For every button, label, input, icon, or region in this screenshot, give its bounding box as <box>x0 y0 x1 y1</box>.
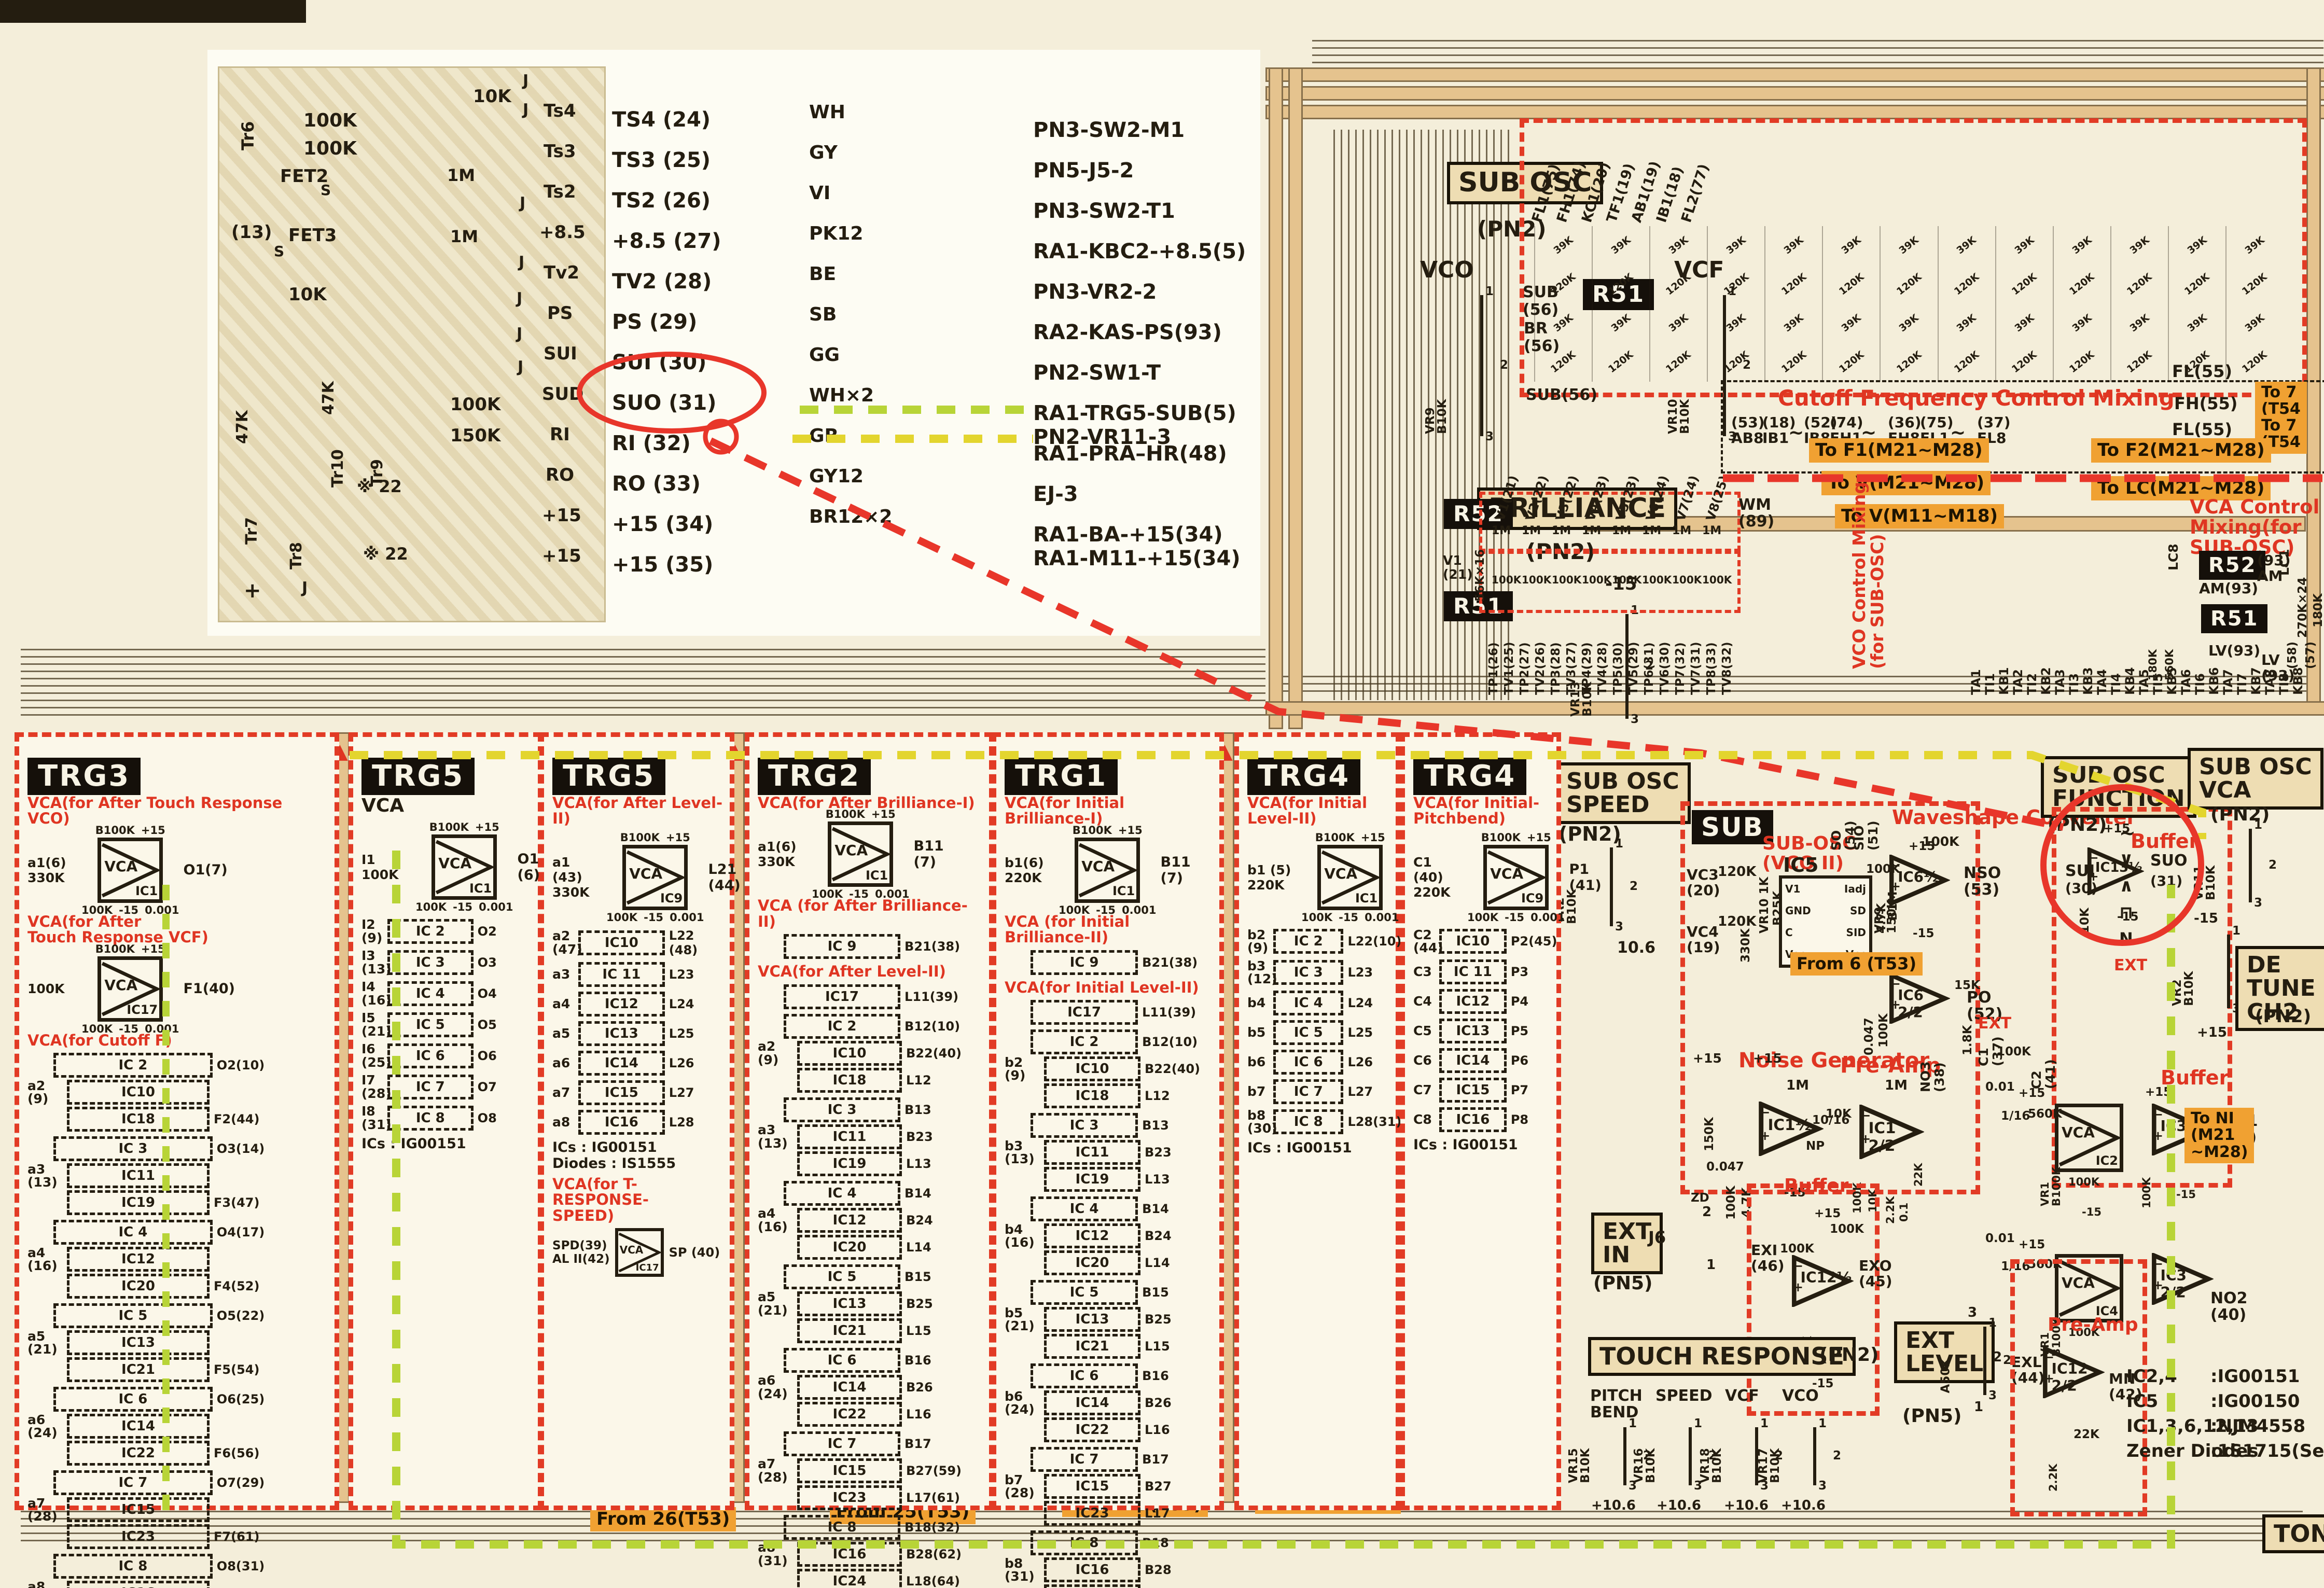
ic-row: IC 8L28(31) <box>1273 1109 1389 1134</box>
ic-box: IC14 <box>1439 1048 1507 1073</box>
label: FL(55) <box>2172 421 2232 439</box>
label: (56) <box>1523 302 1558 318</box>
pot-track <box>1623 1427 1626 1485</box>
label: NSO (53) <box>1964 865 2001 898</box>
label: VCF <box>1725 1388 1759 1404</box>
resistor-cell: 39K <box>2168 226 2225 265</box>
ic-row: IC13B25 <box>1031 1307 1213 1332</box>
ic-output: B28 <box>1145 1563 1172 1577</box>
ic-output: L16 <box>1145 1423 1170 1437</box>
ic-column: IC 11P3 <box>1439 959 1550 984</box>
opamp-label: IC6 2/2 <box>1898 986 1950 1021</box>
label: Ts3 <box>544 142 576 161</box>
vca-bottom-labels: 100K-150.001 <box>606 911 704 924</box>
ic-group: a8IC16L28 <box>552 1110 723 1135</box>
group-input: a2 (47) <box>552 929 575 956</box>
vca-value: 0.001 <box>1365 911 1399 924</box>
resistor-value: 39K <box>2013 235 2036 256</box>
pot-pin: 3 <box>1631 713 1639 726</box>
vca-in: C1 (40) <box>1413 855 1463 885</box>
label: +15 <box>2145 1086 2172 1098</box>
ic-row: IC20F4(52) <box>53 1274 328 1299</box>
opamp-plus: + <box>2153 1129 2163 1143</box>
vca-value: B100K <box>95 824 135 837</box>
resistor-value: 39K <box>1724 235 1748 256</box>
ic-group: C3IC 11P3 <box>1413 959 1550 984</box>
ic-column: IC 3O3(14)IC11IC19F3(47) <box>53 1136 328 1215</box>
ic-row: IC10L22 (48) <box>578 928 723 957</box>
potentiometer: A50K123 <box>1955 1319 2017 1402</box>
ic-row: IC 2O2 <box>387 919 532 944</box>
resistor-cell: 39K <box>1764 226 1822 265</box>
ic-output: L26 <box>669 1056 694 1070</box>
label: 100K <box>2141 1177 2152 1208</box>
vca-bottom-labels: 100K-150.001 <box>1301 911 1399 924</box>
pot-track <box>1813 1427 1816 1485</box>
label: SUD <box>542 385 583 403</box>
ic-output: O4(17) <box>217 1225 265 1239</box>
ic-box: IC11 <box>797 1124 902 1149</box>
ic-output: L15 <box>906 1324 931 1338</box>
resistor-cell: 120K <box>1764 265 1822 304</box>
label: 47K <box>234 410 251 444</box>
label: EXT <box>1978 1015 2011 1032</box>
ic-group: C5IC13P5 <box>1413 1019 1550 1043</box>
ic-output: L11(39) <box>904 990 958 1004</box>
vca-input: a1(6)330K <box>27 855 77 885</box>
resistor-value: 120K <box>1837 350 1866 375</box>
vca-symbol: VCAIC1 <box>432 834 497 900</box>
label: TV5(29) <box>1627 642 1640 695</box>
wire-destination: RA1-BA-+15(34) <box>1033 524 1223 546</box>
ic-row: IC 3O3(14) <box>53 1136 328 1161</box>
ic-box: IC 11 <box>578 962 665 987</box>
vca-core: B100K+15VCAIC17100K-150.001 <box>81 943 179 1035</box>
ic-box: IC10 <box>797 1041 902 1066</box>
label: LC1 <box>2278 549 2292 576</box>
vca-output: B11 (7) <box>1161 854 1191 886</box>
group-input: C3 <box>1413 965 1436 979</box>
group-input: b4 (16) <box>1005 1223 1027 1249</box>
ic-output: L18(64) <box>906 1574 960 1588</box>
vca-ic: IC1 <box>469 882 492 895</box>
label: +15 <box>2019 1087 2045 1099</box>
vca-assembly: a1 (43)330KB100K+15VCAIC9100K-150.001L21… <box>552 831 723 924</box>
label: Tr7 <box>244 517 260 545</box>
ic-output: B24 <box>906 1213 933 1228</box>
ic-box: IC20 <box>797 1235 902 1260</box>
opamp-IC122: IC1 2/2−+ <box>1858 1105 1924 1150</box>
vca-symbol: VCAIC1 <box>98 838 163 903</box>
label: 2 <box>1702 1205 1711 1220</box>
label: J <box>523 73 528 89</box>
vca-symbol: VCAIC1 <box>828 821 893 887</box>
ic-box: IC19 <box>1044 1167 1140 1192</box>
label: -15 <box>2176 1189 2196 1200</box>
label: 10K <box>2079 908 2091 934</box>
ic-row: IC12P4 <box>1439 989 1550 1014</box>
ic-output: L23 <box>1347 965 1373 980</box>
ic-row: IC24L18(64) <box>784 1569 983 1588</box>
ic-row: IC 3B13 <box>1031 1113 1213 1138</box>
vca-top-labels: B100K+15 <box>429 821 499 833</box>
ic-output: L16 <box>906 1407 931 1422</box>
ic-box: IC 4 <box>1031 1196 1138 1221</box>
pot-pin: 1 <box>1694 1417 1702 1430</box>
ic-box: IC22 <box>67 1441 210 1466</box>
opamp-IC1222: IC12 2/2−+ <box>2041 1346 2105 1389</box>
ic-box: IC24 <box>797 1569 902 1588</box>
group-input: b2 (9) <box>1005 1056 1027 1082</box>
ic-row: IC 9B21(38) <box>1031 950 1213 975</box>
resistor-cell: 120K <box>2110 343 2168 382</box>
group-input: C2 (44) <box>1413 928 1436 955</box>
ic-box: IC16 <box>578 1110 665 1135</box>
ic-output: F6(56) <box>214 1446 259 1460</box>
label: 100K <box>1866 863 1900 875</box>
ic-group: a7 (28)IC 7B17IC15B27(59)IC23L17(61) <box>758 1431 983 1510</box>
label: 100K <box>1522 575 1551 586</box>
ic-group: a8 (31)IC 8B18(32)IC16B28(62)IC24L18(64) <box>758 1515 983 1588</box>
label: +8.5 <box>539 223 586 242</box>
ic-column: IC 8B18IC16B28IC24L18 <box>1031 1530 1213 1588</box>
label: VCO <box>1782 1388 1819 1404</box>
label: 100K <box>1582 575 1611 586</box>
resistor-cell: 120K <box>1938 265 1995 304</box>
opamp-label: IC1½ <box>1768 1116 1811 1134</box>
ic-box: IC13 <box>797 1291 902 1316</box>
ic-column: IC 7B17IC15B27IC23L17 <box>1031 1447 1213 1526</box>
label: :NJM4558 <box>2210 1417 2305 1436</box>
resistor-cell: 120K <box>1707 265 1764 304</box>
ic-group: a2 (47)IC10L22 (48) <box>552 928 723 957</box>
label: LV(93) <box>2208 643 2260 659</box>
ic-row: IC 5B15 <box>784 1264 983 1289</box>
ic-box: IC 2 <box>53 1053 213 1078</box>
ic-column: IC 11L23 <box>578 962 723 987</box>
ic-row: IC 4B14 <box>784 1181 983 1206</box>
ic-row: IC 7O7(29) <box>53 1470 328 1495</box>
wire-line <box>0 21 306 23</box>
group-input: a4 (16) <box>758 1207 781 1233</box>
label: 270K×24 <box>2297 577 2309 638</box>
schematic-page: ▲▲▲▲▲R51SUB OSC(PN2)VCOVCFVR9 B10K123VR1… <box>0 0 2324 1588</box>
label: KB7 <box>2250 667 2263 695</box>
ic-column: IC14P6 <box>1439 1048 1550 1073</box>
ic-output: B25 <box>1145 1312 1172 1327</box>
group-input: a4 <box>552 997 575 1011</box>
vca-ic: IC1 <box>135 885 158 898</box>
label: TA3 <box>2054 669 2067 695</box>
group-input: a3 (13) <box>758 1123 781 1150</box>
ic-row: IC23L17 <box>1031 1501 1213 1526</box>
group-input: I2 (9) <box>361 918 384 944</box>
vca-assembly: C1 (40)220KB100K+15VCAIC9100K-150.001P1 … <box>1413 831 1550 924</box>
wire-signal: SUI (30) <box>612 352 706 373</box>
resistor-cell: 39K <box>1995 226 2053 265</box>
vca-in: I1 <box>361 852 411 867</box>
ic-output: B16 <box>1142 1369 1169 1383</box>
ic-box: IC12 <box>67 1247 210 1272</box>
label: 150K <box>450 426 500 445</box>
ic-row: IC10 <box>53 1080 328 1105</box>
ic-row: IC14B26 <box>784 1375 983 1400</box>
vca-value: B100K <box>620 831 660 844</box>
vca-input: I1100K <box>361 852 411 882</box>
wire-destination: PN5-J5-2 <box>1033 160 1134 182</box>
vca-symbol: VCAIC17 <box>615 1228 664 1277</box>
label: Buffer <box>1784 1176 1848 1196</box>
ic-row: IC 4L24 <box>1273 991 1389 1015</box>
pot-track <box>1689 1427 1692 1485</box>
routing-tag: To F1(M21~M28) <box>1809 438 1989 463</box>
ic-box: IC 5 <box>1031 1280 1138 1305</box>
label: KB3 <box>2082 667 2095 695</box>
ic-output: B13 <box>904 1103 931 1117</box>
label: J <box>518 359 523 375</box>
panel-trg2-3: TRG2VCA(for After Brilliance-I)a1(6)330K… <box>745 732 994 1510</box>
ic-output: L24 <box>1347 996 1373 1010</box>
label: 2 <box>1993 1350 2002 1365</box>
label: 120K <box>1718 865 1756 880</box>
group-input: b8 (30) <box>1247 1109 1270 1135</box>
label: +15 <box>2197 1026 2227 1040</box>
ic-row: IC11 <box>53 1163 328 1188</box>
label: TA8 <box>2264 669 2277 695</box>
ic-box: IC 9 <box>784 934 900 959</box>
panel-note: ICs : IG00151 <box>1413 1137 1550 1153</box>
resistor-value: 120K <box>1722 272 1750 297</box>
opamp-IC622: IC6 2/2−+ <box>1888 973 1950 1015</box>
resistor-value: 39K <box>2186 235 2209 256</box>
ic-row: IC17L11(39) <box>784 984 983 1009</box>
resistor-cell: 39K <box>1822 226 1880 265</box>
ic-output: P5 <box>1511 1024 1528 1038</box>
group-input: I8 (31) <box>361 1105 384 1131</box>
wire-signal: PS (29) <box>612 311 697 333</box>
ic-output: B18(32) <box>904 1520 960 1535</box>
ic-box: IC 6 <box>1031 1363 1138 1388</box>
opamp-label: IC13½ <box>2095 860 2142 875</box>
vca-ic: IC2 <box>2096 1154 2118 1167</box>
group-input: C7 <box>1413 1083 1436 1097</box>
vca-symbol: VCAIC17 <box>98 956 163 1022</box>
ic-group: IC 9B21(38) <box>758 934 983 959</box>
block-tag: R52 <box>2199 551 2265 580</box>
dashed-box <box>1479 492 1741 552</box>
ic-box: IC 5 <box>784 1264 900 1289</box>
panel-tag: TRG2 <box>758 758 871 795</box>
ic-group: I6 (25)IC 6O6 <box>361 1042 532 1069</box>
ic-output: B21(38) <box>904 939 960 954</box>
label: TV4(28) <box>1596 642 1609 695</box>
label: (56) <box>1524 338 1560 355</box>
ic-output: L11(39) <box>1142 1005 1196 1020</box>
ic-output: L28(31) <box>1347 1115 1401 1129</box>
group-input: b2 (9) <box>1247 928 1270 955</box>
label: (58) <box>2286 642 2299 669</box>
panel-flow: VCA(for Initial-Pitchbend)C1 (40)220KB10… <box>1413 795 1550 1500</box>
resistor-cell: 120K <box>1822 265 1880 304</box>
vca-function-label: VCA(for After Touch Response VCF) <box>27 914 328 945</box>
ic-box: IC10 <box>1044 1056 1140 1081</box>
ic-box: IC 6 <box>387 1043 474 1068</box>
label: FL(55) <box>2172 363 2232 381</box>
ic-column: IC 4O4 <box>387 981 532 1006</box>
label: :IG00151 <box>2210 1367 2300 1386</box>
ic-output: B14 <box>1142 1202 1169 1216</box>
ic-output: F5(54) <box>214 1362 259 1377</box>
ic-output: B12(10) <box>904 1019 960 1034</box>
ic-row: IC 7O7 <box>387 1075 532 1099</box>
group-input: a2 (9) <box>758 1040 781 1066</box>
group-input: a5 (21) <box>27 1330 50 1356</box>
ic-row: IC14L26 <box>578 1051 723 1076</box>
ic-row: IC 5O5 <box>387 1012 532 1037</box>
ic5-pin: GND <box>1785 904 1811 917</box>
ic-group: a3 (13)IC 3O3(14)IC11IC19F3(47) <box>27 1136 328 1215</box>
ic-group: IC 9B21(38) <box>1005 950 1213 975</box>
ic-output: B16 <box>904 1353 931 1368</box>
resistor-value: 39K <box>2128 313 2151 334</box>
ic-box: IC12 <box>1044 1223 1140 1248</box>
label: ※ 22 <box>357 478 402 496</box>
label: 1M <box>1672 525 1691 537</box>
vca-symbol: VCAIC9 <box>622 845 688 910</box>
ic-row: IC12B24 <box>784 1208 983 1233</box>
vca-value: -15 <box>1339 911 1358 924</box>
label: TA4 <box>2096 669 2109 695</box>
ic-box: IC17 <box>784 984 900 1009</box>
opamp-plus: + <box>2044 1371 2054 1386</box>
ic-output: L27 <box>1347 1084 1373 1099</box>
vca-series-resistor: 330K <box>758 854 808 869</box>
ic-box: IC15 <box>797 1458 902 1483</box>
vca-label: VCA <box>1490 866 1523 882</box>
ic-row: IC18L12 <box>784 1068 983 1093</box>
ic-row: IC22L16 <box>784 1402 983 1427</box>
ic-row: IC19F3(47) <box>53 1190 328 1215</box>
potentiometer: VR17 B10K123 <box>1785 1420 1847 1493</box>
vca-value: B100K <box>826 808 865 820</box>
pot-label: VR11 B10K <box>2193 865 2218 900</box>
ic-box: IC14 <box>797 1375 902 1400</box>
ic-box: IC12 <box>578 992 665 1016</box>
resistor-cell: 39K <box>1649 304 1707 343</box>
group-input: a6 (24) <box>27 1413 50 1440</box>
ic-group: a6 (24)IC 6O6(25)IC14IC22F6(56) <box>27 1387 328 1466</box>
label: VCO Control Mixing (for SUB-OSC) <box>1850 482 1887 669</box>
ic-box: IC24 <box>1044 1584 1140 1588</box>
ic-box: IC15 <box>1044 1474 1140 1499</box>
ic-row: IC 5O5(22) <box>53 1303 328 1328</box>
ic-output: L22(10) <box>1347 934 1401 949</box>
label: EXO (45) <box>1859 1258 1892 1289</box>
ic-output: O2(10) <box>217 1058 265 1072</box>
label: TV6(30) <box>1659 642 1671 695</box>
resistor-value: 120K <box>1952 350 1981 375</box>
vca-top-labels: B100K+15 <box>95 943 165 955</box>
resistor-value: 120K <box>1607 272 1635 297</box>
ic-column: IC 7L27 <box>1273 1079 1389 1104</box>
ic-output: L14 <box>1145 1256 1170 1270</box>
resistor-cell: 39K <box>1880 304 1937 343</box>
resistor-value: 39K <box>1955 313 1979 334</box>
ic-output: O7 <box>478 1080 497 1094</box>
resistor-value: 120K <box>1837 272 1866 297</box>
ic5-right-pins: IadjSDSIDVcc <box>1844 883 1866 960</box>
vca-core: B100K+15VCAIC9100K-150.001 <box>606 831 704 924</box>
pot-label: A50K <box>1940 1358 1952 1393</box>
vca-top-labels: B100K+15 <box>620 831 690 844</box>
ic-output: L13 <box>906 1157 931 1171</box>
label: 1M <box>1885 1079 1908 1093</box>
ic-box: IC20 <box>1044 1250 1140 1275</box>
ic-output: L12 <box>906 1073 931 1088</box>
ic-output: O6(25) <box>217 1392 265 1406</box>
vca-output: F1(40) <box>184 981 235 997</box>
ic-column: IC12L24 <box>578 992 723 1016</box>
label: KB6 <box>2208 667 2221 695</box>
ic-group: b8 (31)IC 8B18IC16B28IC24L18 <box>1005 1530 1213 1588</box>
ic-row: IC 7L27 <box>1273 1079 1389 1104</box>
ic-output: O7(29) <box>217 1475 265 1490</box>
opamp-IC322: IC3 2/2−+ <box>2150 1253 2214 1296</box>
ic-group: I3 (13)IC 3O3 <box>361 949 532 976</box>
label: TV7(31) <box>1690 642 1702 695</box>
ic-box: IC 3 <box>53 1136 213 1161</box>
vca-value: 0.001 <box>1530 911 1565 924</box>
ic-row: IC21L15 <box>1031 1334 1213 1359</box>
resistor-value: 120K <box>1664 272 1693 297</box>
group-input: b5 <box>1247 1026 1270 1039</box>
ic5-pin: Iadj <box>1844 883 1866 895</box>
ic-output: L27 <box>669 1085 694 1100</box>
ic5-pin: C <box>1785 926 1811 939</box>
vca-function-label: VCA(for Initial Level-II) <box>1005 980 1213 995</box>
vca-series-resistor: 330K <box>552 885 602 900</box>
ic-row: IC12B24 <box>1031 1223 1213 1248</box>
label: KB8 <box>2292 667 2305 695</box>
vca-output: O1(7) <box>184 862 228 878</box>
ic-row: IC 3B13 <box>784 1097 983 1122</box>
ic-column: IC 2O2 <box>387 919 532 944</box>
bus-strip <box>1265 701 2324 716</box>
resistor-value: 120K <box>1952 272 1981 297</box>
label: 100K <box>1725 1186 1737 1220</box>
label: 100K <box>303 139 357 159</box>
group-input: a6 (24) <box>758 1374 781 1400</box>
panel-note: ICs : IG00151 Diodes : IS1555 <box>552 1139 723 1172</box>
wire-color-code: BE <box>809 264 836 284</box>
group-input: a7 <box>552 1086 575 1099</box>
resistor-value: 39K <box>1667 235 1690 256</box>
vca-value: +15 <box>871 808 896 820</box>
ic-group: b8 (30)IC 8L28(31) <box>1247 1109 1389 1135</box>
label: SIO (51) <box>1853 820 1880 851</box>
ic-row: IC 11P3 <box>1439 959 1550 984</box>
vca-function-label: VCA(for T-RESPONSE- SPEED) <box>552 1176 723 1223</box>
vca-ic: IC9 <box>1521 892 1543 905</box>
vca-mixing-title: VCA Control Mixing(for SUB-OSC) <box>2190 497 2324 558</box>
vca-value: B100K <box>1073 824 1112 837</box>
group-input: C4 <box>1413 995 1436 1008</box>
label: -15 <box>2117 911 2139 923</box>
label: TA1 <box>1970 669 1983 695</box>
vca-input: 100K <box>27 981 77 996</box>
label: ~ <box>1788 423 1804 443</box>
wire-signal: +15 (34) <box>612 513 713 535</box>
